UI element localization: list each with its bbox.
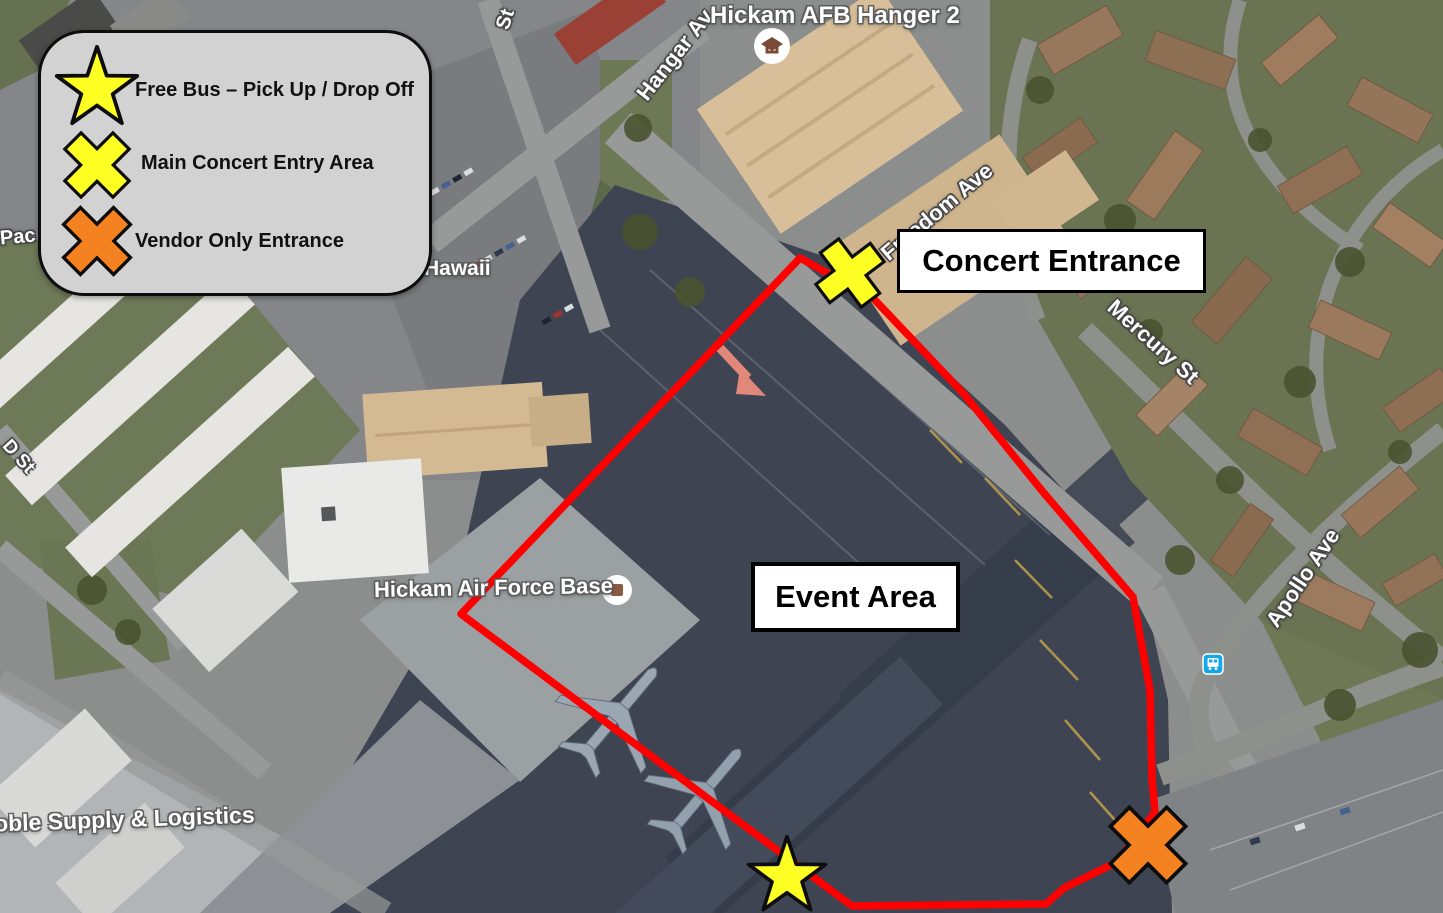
legend-star-icon [53,45,141,133]
legend-label-concert-entry: Main Concert Entry Area [141,152,374,175]
vendor-entrance-marker [1097,794,1199,896]
street-label-pac: Pac [0,224,37,250]
legend-panel: Free Bus – Pick Up / Drop Off Main Conce… [38,30,432,296]
concert-entrance-text: Concert Entrance [922,243,1180,279]
legend-x-orange-icon [57,201,137,281]
place-label-hanger2[interactable]: Hickam AFB Hanger 2 [710,2,960,30]
concert-entrance-callout: Concert Entrance [897,229,1206,293]
legend-label-bus: Free Bus – Pick Up / Drop Off [135,79,414,102]
event-area-callout: Event Area [751,562,960,632]
map-flyer: St Hangar Av Freedom Ave Mercury St Apol… [0,0,1443,913]
event-area-text: Event Area [775,579,936,615]
place-label-hawaii: Hawaii [424,257,491,281]
legend-label-vendor: Vendor Only Entrance [135,230,344,253]
place-label-air-force-base[interactable]: Hickam Air Force Base [374,573,613,603]
bus-pickup-marker [745,835,829,913]
legend-x-yellow-icon [59,127,135,203]
